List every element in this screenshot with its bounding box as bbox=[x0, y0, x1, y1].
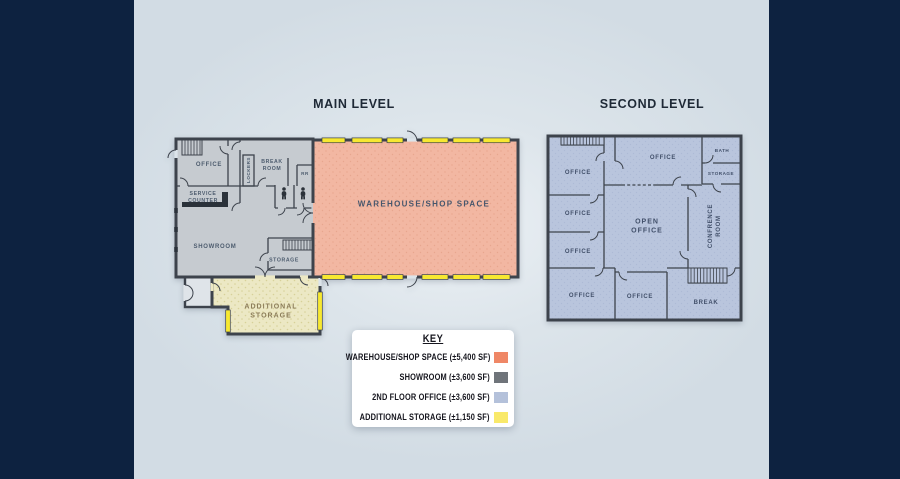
legend-label-storage: ADDITIONAL STORAGE (±1,150 SF) bbox=[360, 412, 490, 423]
main-level-fills bbox=[176, 139, 518, 334]
room-label-second-storage: STORAGE bbox=[708, 171, 734, 177]
stairs-second-bottom bbox=[688, 268, 727, 283]
legend: KEY WAREHOUSE/SHOP SPACE (±5,400 SF) SHO… bbox=[352, 330, 514, 427]
room-label-storage: STORAGE bbox=[269, 257, 299, 264]
main-level-floorplan: OFFICE SERVICE COUNTER LOCKERS BREAK ROO… bbox=[170, 128, 530, 340]
room-label-office-bottom-left: OFFICE bbox=[569, 292, 595, 300]
room-label-office-left-2: OFFICE bbox=[565, 210, 591, 218]
second-level-floorplan: OFFICE OFFICE OFFICE OFFICE OFFICE OFFIC… bbox=[545, 131, 745, 324]
room-label-showroom: SHOWROOM bbox=[194, 243, 237, 251]
room-label-bath: BATH bbox=[715, 148, 729, 154]
room-label-office-bottom-middle: OFFICE bbox=[627, 293, 653, 301]
room-label-additional-storage: ADDITIONAL STORAGE bbox=[239, 303, 303, 322]
room-label-office-top-left: OFFICE bbox=[565, 169, 591, 177]
legend-swatch-showroom bbox=[494, 372, 508, 383]
legend-row-showroom: SHOWROOM (±3,600 SF) bbox=[352, 367, 514, 387]
stairs-main-entry bbox=[182, 140, 202, 155]
room-label-office-top-middle: OFFICE bbox=[650, 154, 676, 162]
room-label-break-room: BREAK ROOM bbox=[259, 159, 285, 173]
second-level-title: SECOND LEVEL bbox=[600, 97, 704, 111]
floorplan-infographic: MAIN LEVEL SECOND LEVEL bbox=[0, 0, 900, 479]
room-label-conference-room: CONFRENCE ROOM bbox=[707, 202, 723, 250]
legend-swatch-office bbox=[494, 392, 508, 403]
room-label-break: BREAK bbox=[694, 299, 719, 307]
stairs-second-top bbox=[561, 137, 604, 145]
room-label-lockers: LOCKERS bbox=[245, 157, 251, 183]
stairs-storage bbox=[283, 240, 312, 250]
main-level-geometry bbox=[170, 128, 530, 340]
room-label-warehouse: WAREHOUSE/SHOP SPACE bbox=[358, 200, 490, 211]
right-navy-panel bbox=[769, 0, 900, 479]
main-level-title: MAIN LEVEL bbox=[313, 97, 395, 111]
legend-row-storage: ADDITIONAL STORAGE (±1,150 SF) bbox=[352, 407, 514, 427]
legend-label-showroom: SHOWROOM (±3,600 SF) bbox=[400, 372, 490, 383]
legend-swatch-storage bbox=[494, 412, 508, 423]
legend-swatch-warehouse bbox=[494, 352, 508, 363]
legend-title: KEY bbox=[364, 333, 502, 347]
room-label-open-office: OPEN OFFICE bbox=[626, 218, 668, 237]
room-label-office-left-3: OFFICE bbox=[565, 248, 591, 256]
legend-row-warehouse: WAREHOUSE/SHOP SPACE (±5,400 SF) bbox=[352, 347, 514, 367]
legend-label-warehouse: WAREHOUSE/SHOP SPACE (±5,400 SF) bbox=[345, 352, 490, 363]
room-label-service-counter: SERVICE COUNTER bbox=[186, 191, 220, 205]
room-label-office: OFFICE bbox=[196, 161, 222, 169]
legend-label-office: 2ND FLOOR OFFICE (±3,600 SF) bbox=[372, 392, 490, 403]
legend-row-office: 2ND FLOOR OFFICE (±3,600 SF) bbox=[352, 387, 514, 407]
left-navy-panel bbox=[0, 0, 134, 479]
room-label-rr: RR bbox=[301, 171, 309, 177]
